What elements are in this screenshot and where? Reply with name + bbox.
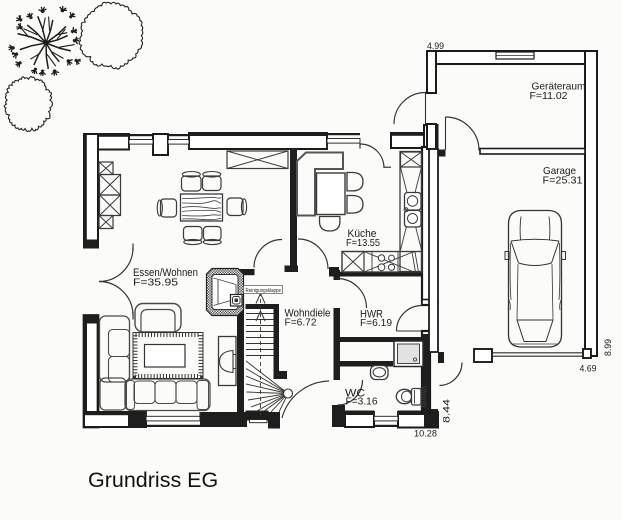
svg-text:F=3.16: F=3.16 bbox=[346, 396, 378, 408]
svg-text:F=6.19: F=6.19 bbox=[360, 317, 392, 329]
svg-text:4.99: 4.99 bbox=[427, 41, 444, 52]
svg-text:F=35.95: F=35.95 bbox=[133, 277, 178, 289]
svg-text:F=13.55: F=13.55 bbox=[346, 237, 380, 249]
svg-text:F=11.02: F=11.02 bbox=[530, 90, 568, 102]
svg-text:Reinigungsklappe: Reinigungsklappe bbox=[246, 288, 282, 294]
svg-text:F=6.72: F=6.72 bbox=[285, 317, 317, 329]
svg-text:F=25.31: F=25.31 bbox=[543, 175, 583, 187]
svg-text:8.44: 8.44 bbox=[442, 399, 453, 423]
svg-text:10.28: 10.28 bbox=[414, 429, 437, 440]
svg-text:4.69: 4.69 bbox=[580, 364, 597, 375]
svg-text:Grundriss EG: Grundriss EG bbox=[88, 468, 218, 492]
svg-text:8.99: 8.99 bbox=[603, 339, 614, 356]
